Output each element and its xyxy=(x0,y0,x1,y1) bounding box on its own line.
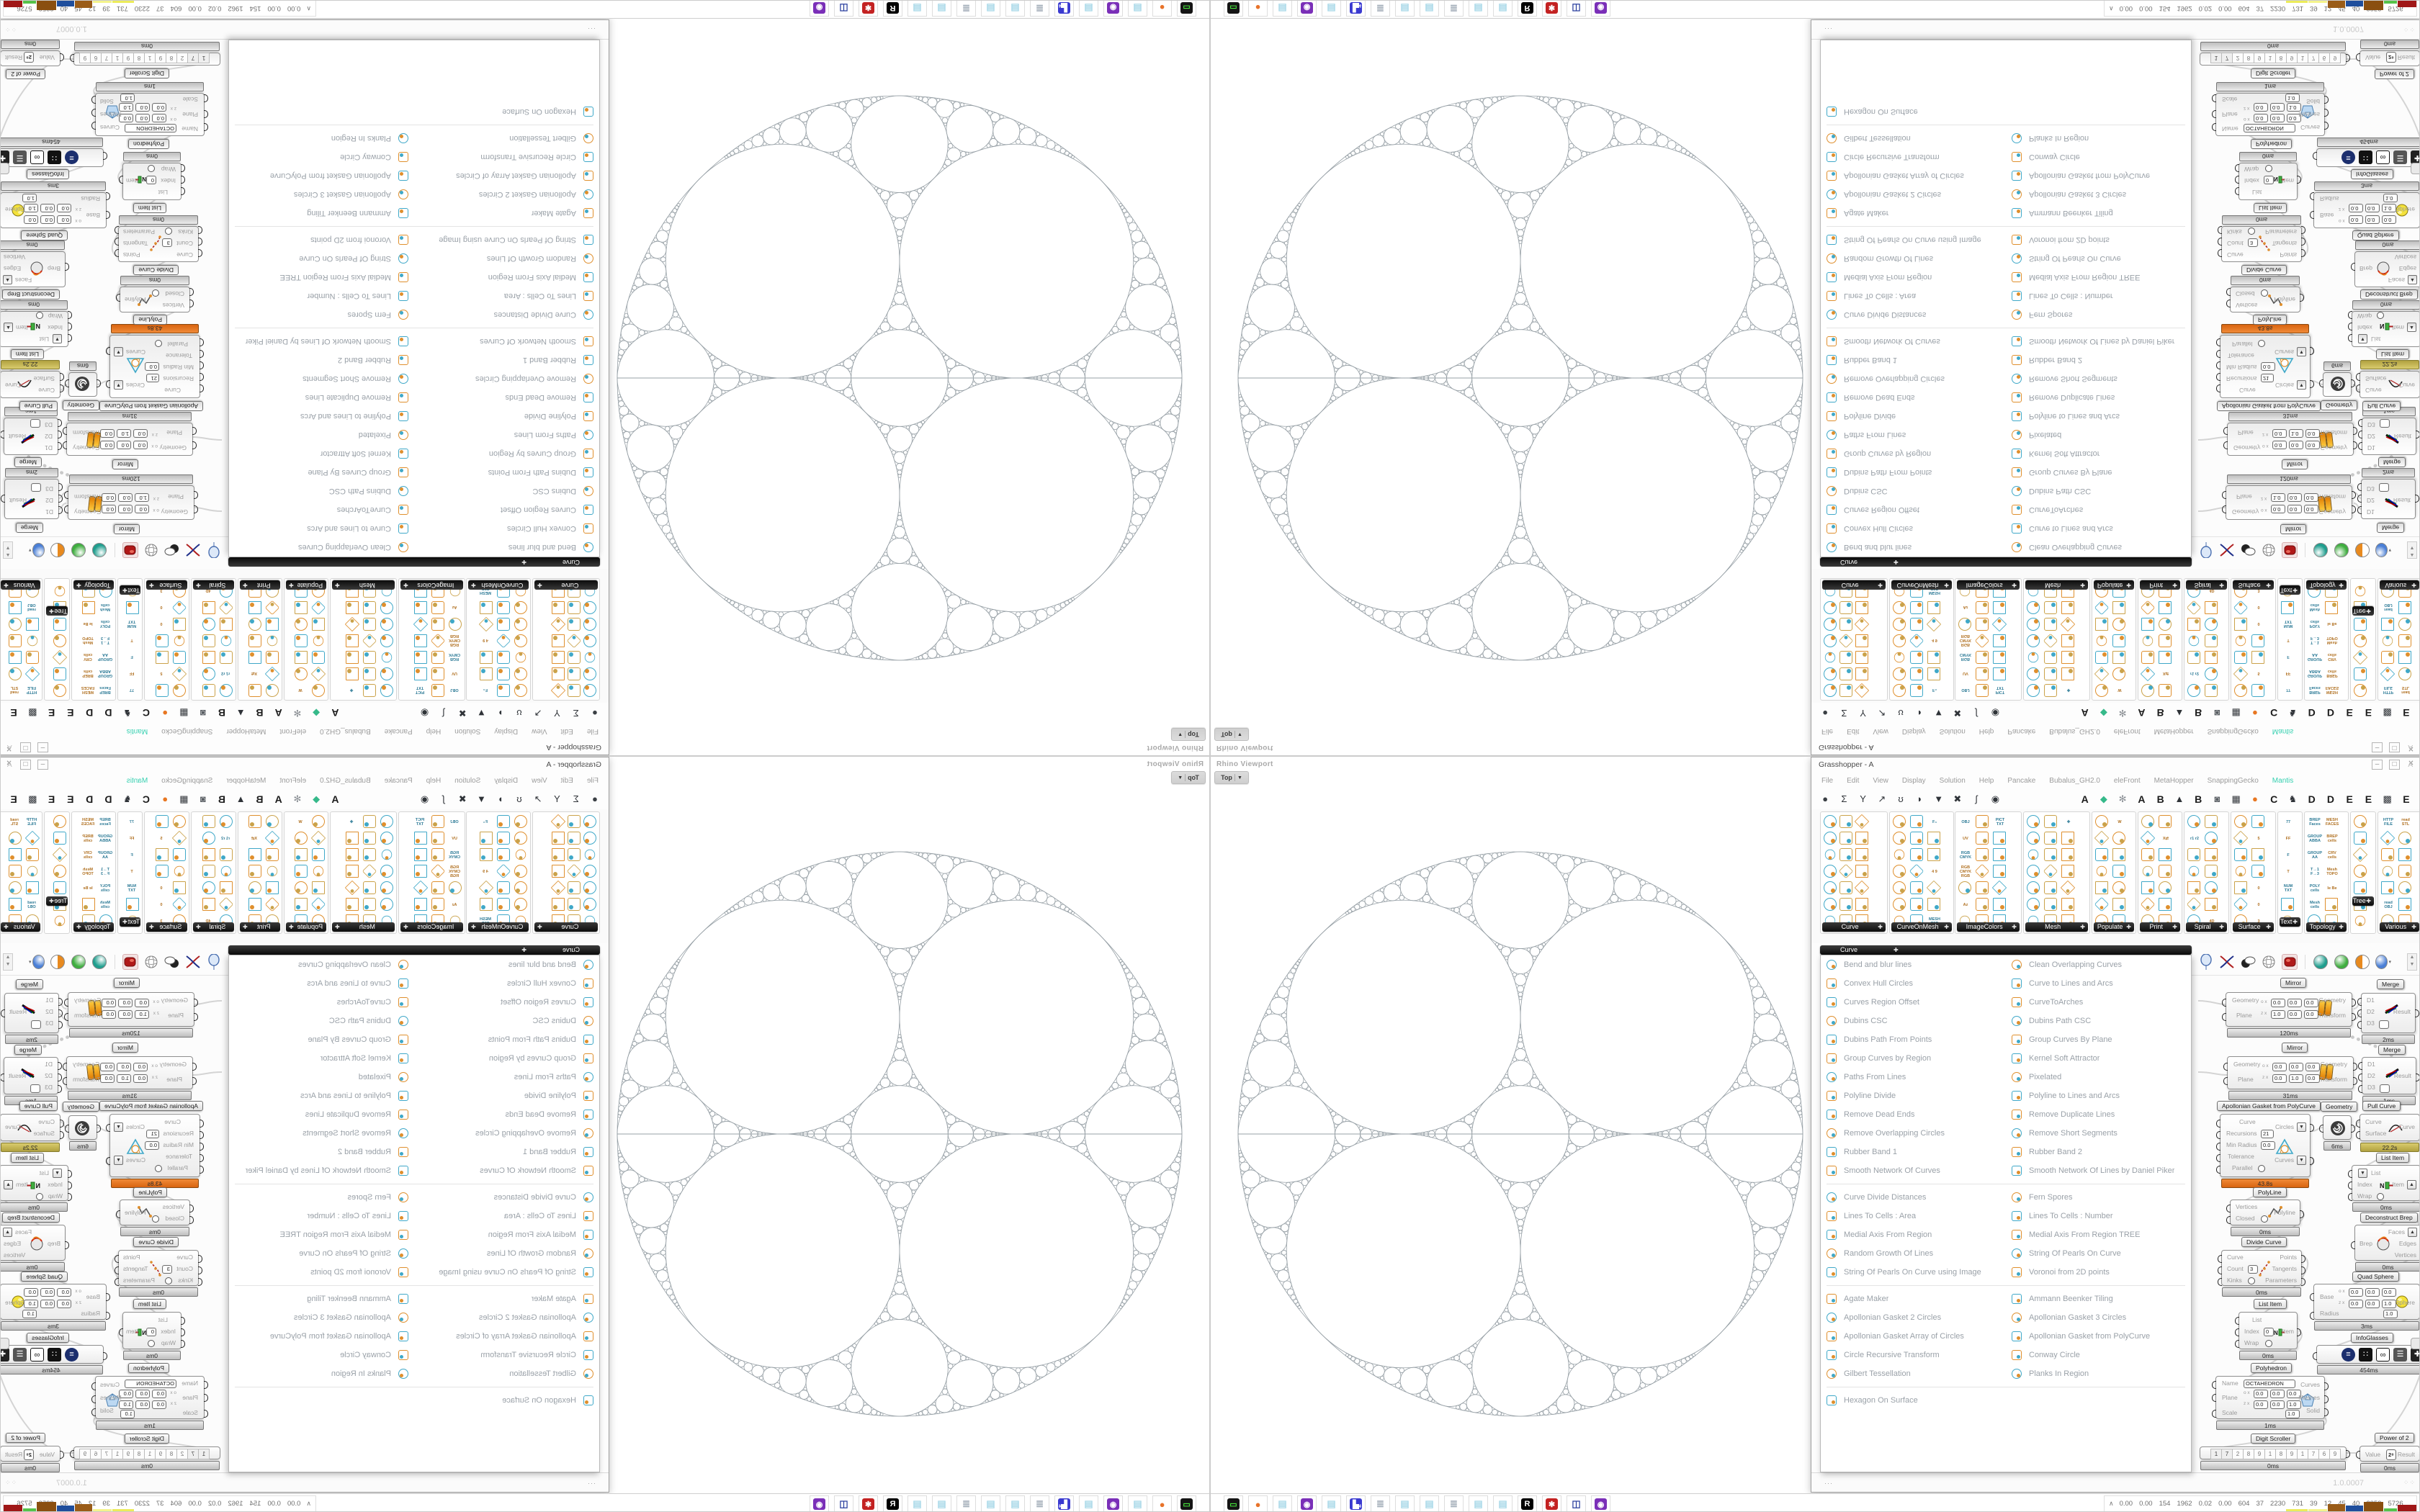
value-capsule[interactable]: 0.0 xyxy=(2270,1400,2285,1409)
wire-grip[interactable] xyxy=(2218,1278,2222,1286)
wire-grip[interactable] xyxy=(2222,999,2226,1007)
ribbon-icon-label[interactable]: Mesh TOPO xyxy=(80,632,96,648)
wire-grip[interactable] xyxy=(2358,1074,2362,1081)
ribbon-panel-tab-topology[interactable]: Topology✚ xyxy=(73,922,114,932)
wire-grip[interactable] xyxy=(0,1300,1,1308)
ribbon-icon-label[interactable]: POLY cells xyxy=(97,616,113,631)
plugin-tab-icon-6[interactable]: ▼ xyxy=(1934,707,1944,719)
plugin-tab-icon-14[interactable]: B xyxy=(2156,793,2166,805)
ribbon-component-icon[interactable] xyxy=(202,618,215,631)
dropdown-item[interactable]: Lines To Cells : Number xyxy=(2006,1207,2191,1225)
ribbon-component-icon[interactable] xyxy=(1910,848,1923,861)
node-tag-apollonian-gasket-from-polycurve[interactable]: Apollonian Gasket from PolyCurve xyxy=(99,1101,203,1111)
ribbon-component-icon[interactable] xyxy=(219,897,233,912)
ribbon-component-icon[interactable] xyxy=(2234,651,2247,664)
rhino-icon[interactable]: R xyxy=(883,1495,902,1512)
ribbon-component-icon[interactable] xyxy=(2159,601,2172,614)
node-tag-infoglasses[interactable]: InfoGlasses xyxy=(2351,1333,2393,1343)
ribbon-component-icon[interactable] xyxy=(2159,815,2172,828)
toggle-circle[interactable] xyxy=(2258,1165,2265,1172)
wire-grip[interactable] xyxy=(2235,187,2239,195)
ribbon-panel-tab-spiral[interactable]: Spiral✚ xyxy=(193,580,234,590)
menu-item-pancake[interactable]: Pancake xyxy=(385,777,413,785)
ribbon-component-icon[interactable] xyxy=(1975,864,1989,878)
ribbon-component-icon[interactable] xyxy=(2353,847,2367,862)
ribbon-component-icon[interactable] xyxy=(2354,832,2367,845)
ribbon-component-icon[interactable] xyxy=(1993,832,2006,845)
ribbon-component-icon[interactable] xyxy=(1855,898,1868,911)
ribbon-component-icon[interactable] xyxy=(380,832,393,845)
ribbon-icon-label[interactable]: X⇄ xyxy=(2158,831,2174,847)
menu-item-snappinggecko[interactable]: SnappingGecko xyxy=(161,777,212,785)
dropdown-item[interactable]: Dubins CSC xyxy=(1821,482,2006,500)
plugin-tab-icon-21[interactable]: ♞ xyxy=(2287,793,2298,805)
dropdown-item[interactable]: String Of Pearls On Curve xyxy=(229,1244,414,1263)
ribbon-component-icon[interactable] xyxy=(2061,865,2074,878)
plugin-tab-icon-5[interactable]: ◗ xyxy=(1914,707,1924,719)
ribbon-component-icon[interactable] xyxy=(497,815,510,828)
plugin-tab-icon-3[interactable]: ↗ xyxy=(1877,707,1887,719)
dropdown-item[interactable]: CurveToArches xyxy=(229,993,414,1012)
node-tag-geometry[interactable]: Geometry xyxy=(2321,400,2357,410)
ribbon-component-icon[interactable] xyxy=(346,634,359,647)
ribbon-icon-label[interactable]: BREP Faces xyxy=(97,814,113,830)
ribbon-icon-label[interactable]: Mesh cells xyxy=(2307,897,2323,913)
wire-grip[interactable] xyxy=(91,122,96,130)
toggle-circle[interactable] xyxy=(152,289,159,297)
gh-component-list1[interactable]: ▼ListIndexNItem▲Wrap xyxy=(0,1165,68,1201)
wire-grip[interactable] xyxy=(64,505,68,513)
dropdown-item[interactable]: Lines To Cells : Number xyxy=(229,287,414,305)
dropdown-item[interactable]: Gilbert Tessellation xyxy=(414,129,599,148)
media-blue-icon[interactable]: ◫ xyxy=(1567,1495,1586,1512)
purple-app-icon[interactable]: ◉ xyxy=(810,1495,829,1512)
node-tag-list-item[interactable]: List Item xyxy=(2376,1153,2409,1163)
purple-app-icon[interactable]: ◉ xyxy=(810,0,829,17)
wire-grip[interactable] xyxy=(2212,123,2216,131)
gh-component-merge[interactable]: D1D2D3Result xyxy=(4,479,59,519)
plugin-tab-icon-8[interactable]: ʃ xyxy=(439,707,449,719)
resize-grip[interactable]: ⁘⁘ xyxy=(4,25,17,33)
arrow-mini-button[interactable]: ▲ xyxy=(2407,1180,2416,1189)
node-tag-merge[interactable]: Merge xyxy=(2378,1045,2406,1055)
dropdown-mini-button[interactable]: ▼ xyxy=(114,347,123,356)
ribbon-component-icon[interactable] xyxy=(265,864,279,878)
ribbon-component-icon[interactable] xyxy=(219,864,233,878)
dropdown-item[interactable]: Random Growth Of Lines xyxy=(1821,249,2006,268)
ribbon-component-icon[interactable] xyxy=(1839,898,1852,911)
gh-component-divide[interactable]: CurveCount3KinksPointsTangentsParameters xyxy=(2221,1250,2302,1286)
ribbon-icon-label[interactable]: T xyxy=(124,864,140,880)
dropdown-mini-button[interactable]: ▼ xyxy=(53,334,62,343)
notepad-icon[interactable]: ▤ xyxy=(1128,1495,1147,1512)
gh-component-poly[interactable]: VerticesClosedPolyline xyxy=(120,287,190,312)
dropdown-item[interactable]: Polyline Divide xyxy=(1821,1086,2006,1105)
plugin-tab-icon-17[interactable]: ◙ xyxy=(198,793,208,805)
ribbon-panel-tab-tree[interactable]: Tree✚ xyxy=(46,606,68,616)
wire-grip[interactable] xyxy=(2358,419,2362,427)
digit-cell[interactable]: 8 xyxy=(2275,53,2287,63)
ribbon-component-icon[interactable] xyxy=(1927,651,1940,664)
value-capsule[interactable]: 0.0 xyxy=(57,1288,71,1297)
plugin-tab-icon-13[interactable]: A xyxy=(274,707,284,719)
gh-component-divide[interactable]: CurveCount3KinksPointsTangentsParameters xyxy=(118,1250,199,1286)
wire-grip[interactable] xyxy=(2226,1216,2231,1224)
ribbon-component-icon[interactable] xyxy=(25,667,40,681)
ribbon-component-icon[interactable] xyxy=(552,667,565,680)
toggle-circle[interactable] xyxy=(36,1193,43,1200)
menu-item-bubalus_gh2.0[interactable]: Bubalus_GH2.0 xyxy=(2049,777,2100,785)
value-capsule[interactable]: OCTAHEDRON xyxy=(125,124,176,132)
value-capsule[interactable]: OCTAHEDRON xyxy=(2244,1380,2295,1388)
notepad-icon[interactable]: ▤ xyxy=(1079,1495,1098,1512)
ribbon-component-icon[interactable] xyxy=(202,684,215,697)
wire-grip[interactable] xyxy=(2222,491,2226,499)
dropdown-item[interactable]: Smooth Network Of Curves xyxy=(414,332,599,351)
value-capsule[interactable] xyxy=(30,1084,40,1093)
ribbon-panel-tab-topology[interactable]: Topology✚ xyxy=(73,580,114,590)
dropdown-item[interactable]: Planks In Region xyxy=(229,129,414,148)
ribbon-component-icon[interactable] xyxy=(248,684,261,697)
ribbon-component-icon[interactable] xyxy=(1992,881,2007,895)
ribbon-component-icon[interactable] xyxy=(2205,881,2218,894)
value-capsule[interactable]: 1.0 xyxy=(2271,493,2285,502)
ribbon-panel-tab-mesh[interactable]: Mesh✚ xyxy=(2025,922,2088,932)
plugin-tab-icon-18[interactable]: ▦ xyxy=(2231,707,2241,719)
dropdown-item[interactable]: Paths From Lines xyxy=(1821,1068,2006,1086)
ribbon-component-icon[interactable] xyxy=(346,601,359,614)
wire-grip[interactable] xyxy=(116,1210,120,1218)
ribbon-component-icon[interactable] xyxy=(2398,634,2411,647)
ribbon-icon-label[interactable]: BREP Faces xyxy=(2307,682,2323,698)
ribbon-component-icon[interactable] xyxy=(2234,684,2247,697)
gh-component-merge[interactable]: D1D2D3Result xyxy=(4,993,59,1033)
menu-item-mantis[interactable]: Mantis xyxy=(127,777,148,785)
glasses-icon[interactable]: ∞ xyxy=(30,150,44,164)
ribbon-icon-label[interactable]: GROUP AA xyxy=(2307,847,2323,863)
gh-component-xform[interactable]: GeometryPlaneo x0.00.00.0z x1.00.00.0Geo… xyxy=(68,485,194,520)
ribbon-icon-label[interactable]: Ie Be xyxy=(80,881,96,896)
node-tag-infoglasses[interactable]: InfoGlasses xyxy=(2351,169,2393,179)
ribbon-component-icon[interactable] xyxy=(346,848,359,861)
collapse-chevron-icon[interactable]: ∧ xyxy=(2109,4,2114,12)
dropdown-item[interactable]: Medial Axis From Region TREE xyxy=(2006,268,2191,287)
dropdown-item[interactable]: Group Curves by Region xyxy=(1821,444,2006,463)
ribbon-component-icon[interactable] xyxy=(1839,684,1852,697)
dropdown-item[interactable]: Apollonian Gasket from PolyCurve xyxy=(229,1327,414,1346)
menu-item-edit[interactable]: Edit xyxy=(1847,728,1859,736)
wire-grip[interactable] xyxy=(2319,379,2323,387)
dropdown-item[interactable]: Apollonian Gasket 2 Circles xyxy=(1821,185,2006,204)
ribbon-component-icon[interactable] xyxy=(2233,634,2248,648)
value-capsule[interactable]: 0.0 xyxy=(2287,505,2302,513)
dropdown-item[interactable]: Circle Recursive Transform xyxy=(1821,148,2006,166)
purple-app-icon[interactable]: ◉ xyxy=(1103,1495,1123,1512)
toggle-circle[interactable] xyxy=(155,340,162,347)
dropdown-item[interactable]: Agate Maker xyxy=(1821,1290,2006,1308)
ribbon-component-icon[interactable] xyxy=(2187,618,2200,631)
digit-cell[interactable]: 9 xyxy=(2329,53,2341,63)
ribbon-component-icon[interactable] xyxy=(2354,684,2367,697)
value-capsule[interactable]: 0.0 xyxy=(118,505,133,513)
wire-grip[interactable] xyxy=(2358,442,2362,450)
plugin-tab-icon-14[interactable]: B xyxy=(254,793,264,805)
gh-component-qsphere[interactable]: Baseo x0.00.00.0z x0.00.01.0Radius1.0Sph… xyxy=(0,1284,107,1320)
ribbon-component-icon[interactable] xyxy=(380,865,393,878)
wire-grip[interactable] xyxy=(2356,1120,2360,1128)
node-tag-mirror[interactable]: Mirror xyxy=(2282,459,2308,469)
ribbon-icon-label[interactable]: BREP Faces xyxy=(2307,814,2323,830)
dropdown-item[interactable]: Apollonian Gasket from PolyCurve xyxy=(2006,1327,2191,1346)
ribbon-component-icon[interactable] xyxy=(266,651,279,664)
ribbon-component-icon[interactable] xyxy=(266,815,279,828)
ribbon-component-icon[interactable] xyxy=(2398,865,2411,878)
ribbon-panel-tab-print[interactable]: Print✚ xyxy=(240,922,280,932)
node-tag-digit-scroller[interactable]: Digit Scroller xyxy=(125,68,169,78)
ribbon-component-icon[interactable] xyxy=(2381,618,2394,631)
ribbon-component-icon[interactable] xyxy=(2095,651,2108,664)
ribbon-component-icon[interactable] xyxy=(414,667,427,680)
menu-item-help[interactable]: Help xyxy=(426,777,442,785)
notepad-icon[interactable]: ▤ xyxy=(1005,1495,1025,1512)
ribbon-component-icon[interactable] xyxy=(363,601,376,614)
wire-grip[interactable] xyxy=(63,441,67,449)
ribbon-panel-tab-spiral[interactable]: Spiral✚ xyxy=(2186,922,2227,932)
value-capsule[interactable]: 1.0 xyxy=(2289,1074,2303,1083)
ribbon-component-icon[interactable] xyxy=(567,864,581,878)
ribbon-component-icon[interactable] xyxy=(552,651,565,664)
dropdown-item[interactable]: String Of Pearls On Curve xyxy=(2006,1244,2191,1263)
gh-component-xform[interactable]: GeometryPlaneo x0.00.00.0z x1.00.00.0Geo… xyxy=(2226,485,2352,520)
dropdown-item[interactable]: Polyline to Lines and Arcs xyxy=(229,407,414,426)
dropdown-item[interactable]: Conway Circle xyxy=(2006,148,2191,166)
wire-grip[interactable] xyxy=(2216,1131,2220,1139)
ribbon-component-icon[interactable] xyxy=(1927,617,1941,631)
ribbon-component-icon[interactable] xyxy=(551,683,565,698)
node-tag-list-item[interactable]: List Item xyxy=(11,349,44,359)
wire-grip[interactable] xyxy=(106,380,110,388)
value-capsule[interactable]: 0.0 xyxy=(2382,1288,2396,1297)
ribbon-component-icon[interactable] xyxy=(2043,864,2058,878)
plugin-tab-icon-22[interactable]: D xyxy=(103,793,113,805)
dropdown-item[interactable]: Curve to Lines and Arcs xyxy=(229,974,414,993)
ribbon-component-icon[interactable] xyxy=(568,667,581,680)
ribbon-component-icon[interactable] xyxy=(220,651,233,664)
wire-grip[interactable] xyxy=(64,999,68,1007)
menu-item-display[interactable]: Display xyxy=(494,728,518,736)
ribbon-component-icon[interactable] xyxy=(1910,881,1923,894)
dropdown-item[interactable]: Remove Short Segments xyxy=(2006,1124,2191,1143)
ribbon-panel-tab-mesh[interactable]: Mesh✚ xyxy=(2025,580,2088,590)
grid-icon[interactable]: ∷ xyxy=(2359,150,2372,164)
menu-item-edit[interactable]: Edit xyxy=(1847,777,1859,785)
menu-item-file[interactable]: File xyxy=(1821,777,1833,785)
ribbon-component-icon[interactable] xyxy=(2205,848,2218,861)
ribbon-component-icon[interactable] xyxy=(2095,815,2108,828)
wire-grip[interactable] xyxy=(2358,431,2362,438)
menu-item-solution[interactable]: Solution xyxy=(454,728,480,736)
ribbon-component-icon[interactable] xyxy=(1824,634,1837,647)
ribbon-component-icon[interactable] xyxy=(2354,815,2367,828)
ribbon-component-icon[interactable] xyxy=(568,832,581,845)
notepad-icon[interactable]: ▤ xyxy=(907,0,927,17)
ribbon-panel-tab-populate[interactable]: Populate✚ xyxy=(286,922,326,932)
plugin-tab-icon-1[interactable]: Σ xyxy=(571,793,581,805)
ribbon-component-icon[interactable] xyxy=(583,865,596,878)
value-capsule[interactable]: 0.0 xyxy=(135,999,149,1007)
ribbon-icon-label[interactable]: ✚ xyxy=(344,814,359,830)
digit-cell[interactable]: 9 xyxy=(2286,53,2298,63)
titlebar[interactable]: Grasshopper - A –□✕ xyxy=(1811,757,2420,772)
plugin-tab-icon-23[interactable]: D xyxy=(84,793,94,805)
ribbon-component-icon[interactable] xyxy=(2398,881,2411,894)
wire-grip[interactable] xyxy=(2212,1410,2216,1418)
ribbon-icon-label[interactable]: read OBJ xyxy=(24,897,40,913)
value-capsule[interactable]: 0.0 xyxy=(2365,1288,2380,1297)
ribbon-icon-label[interactable]: CRV cells xyxy=(80,649,96,665)
ribbon-icon-label[interactable]: RGB CMYK RGB xyxy=(447,632,462,648)
value-capsule[interactable]: 0.0 xyxy=(102,505,116,513)
ribbon-component-icon[interactable] xyxy=(497,684,510,697)
ribbon-icon-label[interactable]: OBJ xyxy=(447,682,462,698)
digit-cell[interactable]: 9 xyxy=(122,53,134,63)
gh-component-pull[interactable]: CurveSurfaceCurve xyxy=(2359,371,2420,398)
node-tag-merge[interactable]: Merge xyxy=(16,979,43,989)
ribbon-component-icon[interactable] xyxy=(311,897,326,912)
info-circle-icon[interactable]: ≡ xyxy=(65,150,79,164)
dropdown-item[interactable]: Group Curves By Plane xyxy=(229,463,414,482)
ribbon-component-icon[interactable] xyxy=(552,634,565,647)
ribbon-icon-label[interactable]: Ie Be xyxy=(2324,616,2340,631)
ribbon-icon-label[interactable]: 5 xyxy=(2251,831,2267,847)
gh-component-apollo[interactable]: CurveRecursions21Min Radius0.0ToleranceP… xyxy=(2220,1114,2311,1177)
node-tag-geometry[interactable]: Geometry xyxy=(2321,1102,2357,1112)
dropdown-item[interactable]: Apollonian Gasket 2 Circles xyxy=(1821,1308,2006,1327)
wire-grip[interactable] xyxy=(2351,263,2355,271)
dropdown-item[interactable]: Remove Duplicate Lines xyxy=(229,388,414,407)
menu-item-pancake[interactable]: Pancake xyxy=(2007,728,2035,736)
ribbon-component-icon[interactable] xyxy=(2112,848,2125,861)
digit-cell[interactable]: 6 xyxy=(2318,53,2330,63)
puzzle-icon[interactable]: ✚ xyxy=(2411,1348,2420,1362)
dropdown-item[interactable]: Kernel Soft Attractor xyxy=(229,1049,414,1068)
ribbon-component-icon[interactable] xyxy=(126,898,139,911)
plugin-tab-icon-24[interactable]: E xyxy=(2344,793,2354,805)
dropdown-item[interactable]: Remove Overlapping Circles xyxy=(414,369,599,388)
digit-cell[interactable]: 1 xyxy=(144,1449,156,1459)
ribbon-component-icon[interactable] xyxy=(514,618,527,631)
ribbon-component-icon[interactable] xyxy=(2043,634,2058,648)
value-capsule[interactable]: 0.0 xyxy=(133,1074,148,1083)
ribbon-component-icon[interactable] xyxy=(2112,881,2125,894)
plugin-tab-icon-11[interactable]: ◆ xyxy=(311,707,321,719)
power-capsule[interactable]: 2⁸ xyxy=(2386,52,2396,63)
ribbon-component-icon[interactable] xyxy=(53,667,66,680)
ribbon-icon-label[interactable]: F xyxy=(124,847,140,863)
ribbon-panel-tab-various[interactable]: Various✚ xyxy=(1,580,40,590)
wire-grip[interactable] xyxy=(63,1077,67,1085)
ribbon-component-icon[interactable] xyxy=(2380,831,2395,845)
ribbon-icon-label[interactable]: POLY cells xyxy=(2307,616,2323,631)
ribbon-component-icon[interactable] xyxy=(26,618,39,631)
digit-cell[interactable]: 7 xyxy=(101,53,112,63)
ribbon-component-icon[interactable] xyxy=(2112,601,2125,614)
dropdown-item[interactable]: Remove Duplicate Lines xyxy=(2006,1105,2191,1124)
ribbon-component-icon[interactable] xyxy=(2234,618,2247,631)
menu-item-display[interactable]: Display xyxy=(1902,728,1926,736)
wire-grip[interactable] xyxy=(2235,1340,2239,1348)
ribbon-icon-label[interactable]: NUM TXT xyxy=(124,616,140,631)
value-capsule[interactable]: 0 xyxy=(146,1328,156,1336)
firefox-icon[interactable]: ● xyxy=(1248,1495,1268,1512)
ribbon-component-icon[interactable] xyxy=(53,832,66,845)
ribbon-icon-label[interactable]: HTTP FILE xyxy=(2380,682,2396,698)
ribbon-component-icon[interactable] xyxy=(2325,601,2338,614)
ribbon-component-icon[interactable] xyxy=(480,898,493,911)
ribbon-icon-label[interactable]: UV xyxy=(1958,665,1973,681)
dropdown-item[interactable]: Hexagon On Surface xyxy=(1821,1391,2006,1410)
ribbon-component-icon[interactable] xyxy=(156,651,169,664)
ribbon-component-icon[interactable] xyxy=(2381,881,2394,894)
ribbon-component-icon[interactable] xyxy=(479,881,493,895)
ribbon-component-icon[interactable] xyxy=(2234,815,2247,828)
ribbon-component-icon[interactable] xyxy=(1976,618,1989,631)
wire-grip[interactable] xyxy=(2216,361,2220,369)
ribbon-component-icon[interactable] xyxy=(173,651,186,664)
minimize-button[interactable]: – xyxy=(2372,742,2383,752)
arrow-mini-button[interactable]: ▲ xyxy=(2407,323,2416,332)
ribbon-component-icon[interactable] xyxy=(2027,865,2040,878)
ribbon-component-icon[interactable] xyxy=(1975,634,1989,648)
ribbon-component-icon[interactable] xyxy=(2233,667,2248,681)
gh-component-info[interactable]: ≡∷∞☰✚ xyxy=(0,148,104,167)
ribbon-component-icon[interactable] xyxy=(552,832,565,845)
plugin-tab-icon-15[interactable]: ▲ xyxy=(236,793,246,805)
printer-icon[interactable]: ≣ xyxy=(1371,1495,1390,1512)
plugin-tab-icon-21[interactable]: ♞ xyxy=(2287,707,2298,719)
wire-grip[interactable] xyxy=(2235,1328,2239,1336)
ribbon-component-icon[interactable] xyxy=(1893,667,1906,680)
dropdown-item[interactable]: Rubber Band 1 xyxy=(414,351,599,369)
dropdown-item[interactable]: Group Curves by Region xyxy=(414,444,599,463)
node-tag-merge[interactable]: Merge xyxy=(14,457,42,467)
ribbon-component-icon[interactable] xyxy=(583,881,596,894)
digit-cell[interactable]: 8 xyxy=(2243,53,2254,63)
ribbon-component-icon[interactable] xyxy=(346,832,359,845)
ribbon-component-icon[interactable] xyxy=(2044,881,2057,894)
ribbon-component-icon[interactable] xyxy=(2398,898,2411,911)
dropdown-item[interactable]: Ammann Beenker Tiling xyxy=(2006,204,2191,222)
ribbon-component-icon[interactable] xyxy=(2094,634,2109,648)
gh-component-qsphere[interactable]: Baseo x0.00.00.0z x0.00.01.0Radius1.0Sph… xyxy=(2313,192,2420,228)
ribbon-component-icon[interactable] xyxy=(449,881,462,894)
ribbon-component-icon[interactable] xyxy=(26,651,39,664)
value-capsule[interactable]: 0.0 xyxy=(24,215,38,224)
value-capsule[interactable]: 21 xyxy=(2261,374,2274,382)
ribbon-icon-label[interactable]: 77 xyxy=(124,682,140,698)
ribbon-icon-label[interactable]: GROUP ABBA xyxy=(2307,665,2323,681)
dropdown-item[interactable]: Apollonian Gasket 3 Circles xyxy=(229,1308,414,1327)
ribbon-component-icon[interactable] xyxy=(2094,831,2109,845)
ribbon-component-icon[interactable] xyxy=(2027,881,2040,894)
ribbon-component-icon[interactable] xyxy=(431,618,444,631)
gh-component-xform[interactable]: GeometryPlaneo x0.00.00.0z x0.01.00.0Geo… xyxy=(66,423,193,456)
dropdown-item[interactable]: Dubins CSC xyxy=(414,482,599,500)
ribbon-component-icon[interactable] xyxy=(380,881,393,894)
ribbon-panel-tab-curve[interactable]: Curve✚ xyxy=(534,580,598,590)
dropdown-item[interactable]: Lines To Cells : Area xyxy=(414,1207,599,1225)
dropdown-item[interactable]: Agate Maker xyxy=(1821,204,2006,222)
